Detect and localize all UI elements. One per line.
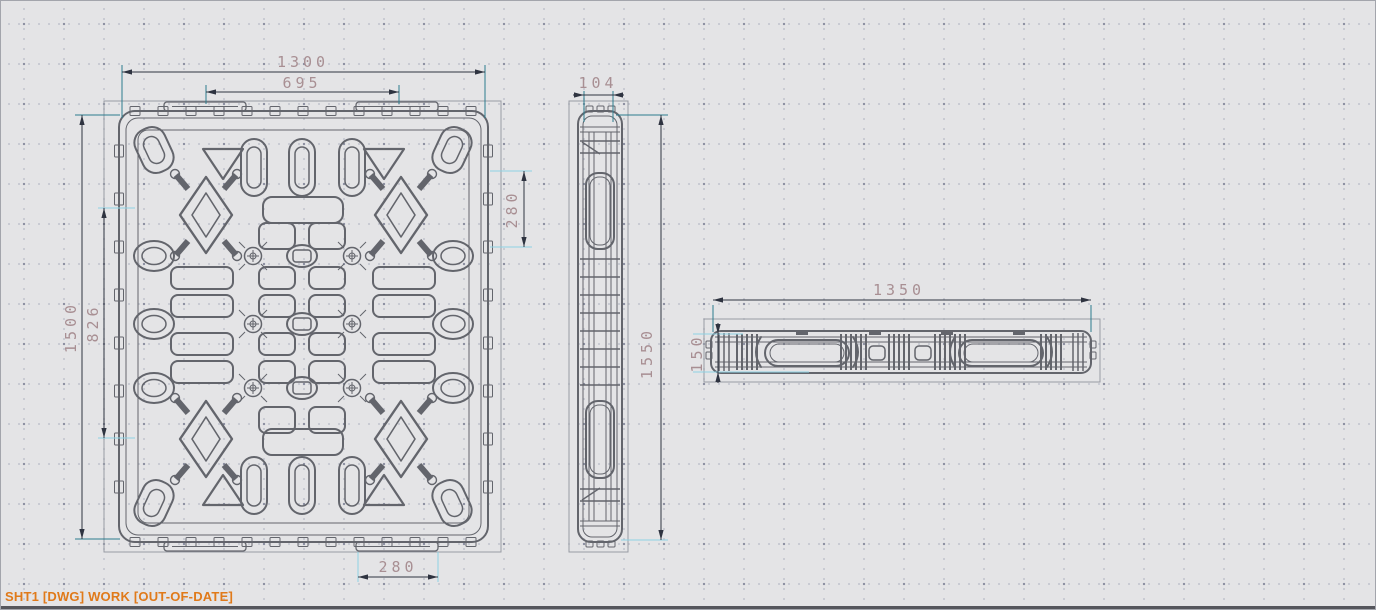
dim-side-thickness[interactable]: 104 (578, 74, 617, 92)
top-view[interactable] (104, 101, 501, 552)
dim-front-length[interactable]: 1350 (873, 281, 925, 299)
dim-top-inner-height[interactable]: 826 (84, 303, 102, 342)
dim-top-overall-width[interactable]: 1300 (277, 53, 329, 71)
drawing-sheet: 1300 695 1500 826 280 280 104 1550 1350 … (1, 1, 1376, 610)
dim-top-bottom-handle[interactable]: 280 (378, 558, 417, 576)
front-view[interactable] (704, 319, 1100, 382)
dim-top-side-slot[interactable]: 280 (503, 189, 521, 228)
dim-side-length[interactable]: 1550 (638, 327, 656, 379)
dim-front-height[interactable]: 150 (688, 333, 706, 372)
status-bar-edge (1, 606, 1375, 609)
dim-top-overall-height[interactable]: 1500 (62, 301, 80, 353)
dim-top-handle-span[interactable]: 695 (282, 74, 321, 92)
dimension-labels: 1300 695 1500 826 280 280 104 1550 1350 … (62, 53, 925, 576)
cad-canvas: 1300 695 1500 826 280 280 104 1550 1350 … (0, 0, 1376, 610)
side-view[interactable] (569, 101, 628, 552)
status-bar-text: SHT1 [DWG] WORK [OUT-OF-DATE] (5, 589, 233, 604)
